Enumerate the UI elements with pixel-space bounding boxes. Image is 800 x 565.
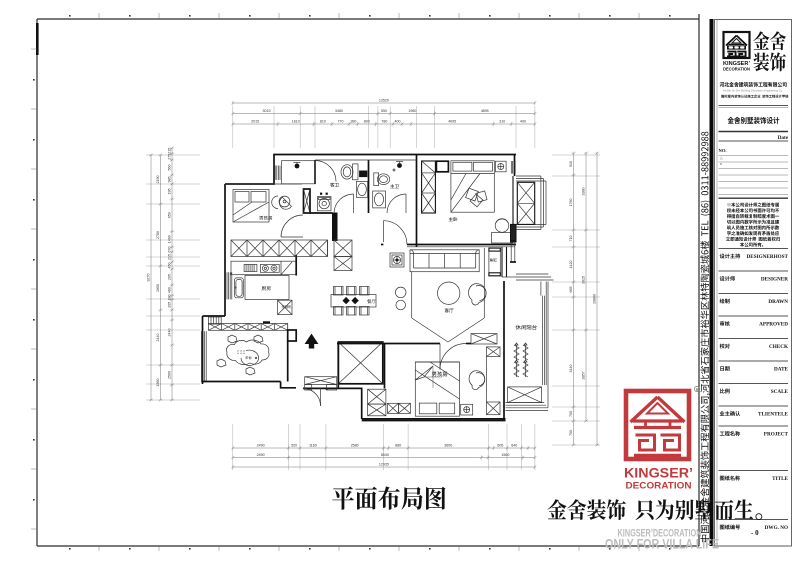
svg-text:3600: 3600	[444, 444, 452, 448]
svg-text:2490: 2490	[257, 453, 265, 457]
svg-text:x: x	[720, 162, 722, 166]
svg-text:700: 700	[569, 430, 573, 436]
svg-text:2857: 2857	[582, 372, 586, 380]
svg-text:1560: 1560	[501, 453, 509, 457]
svg-text:2190: 2190	[156, 176, 160, 184]
svg-text:640: 640	[511, 444, 517, 448]
svg-text:205: 205	[168, 274, 172, 280]
svg-text:SCALE: SCALE	[771, 389, 789, 395]
svg-text:4095: 4095	[448, 120, 456, 124]
svg-text:2015: 2015	[251, 120, 259, 124]
svg-text:880: 880	[395, 444, 401, 448]
svg-text:KINGSER’: KINGSER’	[624, 466, 693, 482]
svg-text:1460: 1460	[168, 235, 172, 243]
svg-text:- 0: - 0	[751, 529, 759, 537]
svg-text:400: 400	[395, 120, 401, 124]
svg-text:3440: 3440	[569, 365, 573, 373]
svg-text:DRAWN: DRAWN	[768, 299, 788, 305]
svg-text:1420: 1420	[569, 261, 573, 269]
svg-text:8640: 8640	[381, 453, 389, 457]
svg-text:Date: Date	[778, 135, 789, 141]
svg-text:1160: 1160	[309, 444, 317, 448]
svg-text:2560: 2560	[168, 371, 172, 379]
svg-text:390: 390	[350, 120, 356, 124]
svg-text:1980: 1980	[408, 109, 416, 113]
svg-text:DESIGNER: DESIGNER	[761, 277, 788, 283]
svg-text:2490: 2490	[257, 444, 265, 448]
svg-text:1950: 1950	[156, 284, 160, 292]
svg-text:2580: 2580	[351, 444, 359, 448]
svg-text:480: 480	[168, 287, 172, 293]
svg-text:770: 770	[338, 120, 344, 124]
svg-text:605: 605	[497, 444, 503, 448]
svg-text:650: 650	[168, 212, 172, 218]
svg-text:450: 450	[168, 263, 172, 269]
svg-text:NO.: NO.	[719, 148, 727, 153]
svg-text:215: 215	[168, 148, 172, 154]
svg-text:710: 710	[569, 236, 573, 242]
svg-text:ONLY FOR VILLA LIFE: ONLY FOR VILLA LIFE	[605, 537, 719, 552]
svg-text:10800: 10800	[593, 294, 597, 304]
svg-text:9270: 9270	[147, 274, 151, 282]
svg-text:490: 490	[520, 120, 526, 124]
svg-text:TITLE: TITLE	[772, 476, 788, 482]
svg-text:780: 780	[381, 120, 387, 124]
svg-text:670: 670	[168, 247, 172, 253]
svg-text:3015: 3015	[263, 109, 271, 113]
svg-text:2440: 2440	[156, 334, 160, 342]
svg-text:DATE: DATE	[774, 367, 789, 373]
svg-text:3480: 3480	[335, 109, 343, 113]
svg-text:DECORATION: DECORATION	[626, 481, 692, 492]
svg-text:985: 985	[168, 177, 172, 183]
svg-text:520: 520	[291, 444, 297, 448]
svg-text:800: 800	[364, 120, 370, 124]
svg-text:1560: 1560	[156, 379, 160, 387]
svg-text:TLIENTELE: TLIENTELE	[758, 412, 789, 418]
svg-text:700: 700	[569, 411, 573, 417]
svg-text:CHECK: CHECK	[769, 344, 788, 350]
svg-text:3915: 3915	[582, 276, 586, 284]
svg-text:2780: 2780	[156, 231, 160, 239]
svg-text:PROJECT: PROJECT	[764, 432, 789, 438]
svg-text:4895: 4895	[481, 109, 489, 113]
svg-text:195: 195	[168, 189, 172, 195]
svg-text:3380: 3380	[582, 188, 586, 196]
svg-text:810: 810	[320, 120, 326, 124]
svg-text:He Bei Jin She Building Decora: He Bei Jin She Building Decoration Engin…	[723, 89, 783, 93]
svg-text:310: 310	[499, 120, 505, 124]
svg-text:DESIGNERHOST: DESIGNERHOST	[746, 254, 788, 260]
svg-text:1760: 1760	[569, 199, 573, 207]
svg-text:550: 550	[381, 109, 387, 113]
svg-text:215: 215	[168, 254, 172, 260]
svg-text:205: 205	[168, 302, 172, 308]
svg-text:665: 665	[569, 287, 573, 293]
svg-text:12935: 12935	[379, 463, 389, 467]
svg-text:2440: 2440	[168, 329, 172, 337]
svg-text:910: 910	[569, 161, 573, 167]
svg-text:13520: 13520	[379, 99, 389, 103]
svg-text:DECORATION: DECORATION	[723, 67, 750, 72]
svg-text:DWG. NO: DWG. NO	[765, 525, 788, 531]
svg-text:APPROVED: APPROVED	[759, 322, 788, 328]
svg-text:180: 180	[168, 295, 172, 301]
svg-text:560: 560	[168, 165, 172, 171]
svg-text:275: 275	[168, 154, 172, 160]
svg-text:1610: 1610	[292, 120, 300, 124]
